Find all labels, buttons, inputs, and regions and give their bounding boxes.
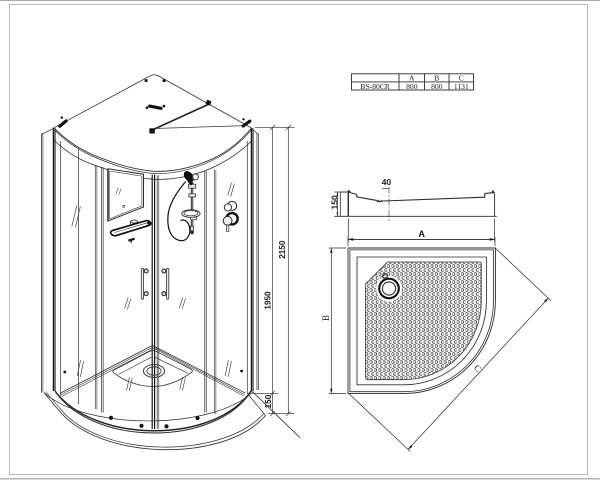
svg-text:C: C: [472, 363, 483, 374]
svg-text:2150: 2150: [278, 240, 287, 259]
svg-text:800: 800: [406, 82, 418, 91]
svg-text:A: A: [419, 229, 426, 239]
svg-text:BS-80CR: BS-80CR: [360, 82, 390, 91]
svg-text:150: 150: [329, 195, 339, 210]
svg-text:800: 800: [431, 82, 443, 91]
svg-text:1131: 1131: [454, 82, 469, 91]
svg-text:40: 40: [382, 177, 392, 187]
svg-text:1950: 1950: [264, 291, 273, 310]
svg-text:150: 150: [264, 394, 273, 408]
svg-text:B: B: [321, 315, 331, 321]
